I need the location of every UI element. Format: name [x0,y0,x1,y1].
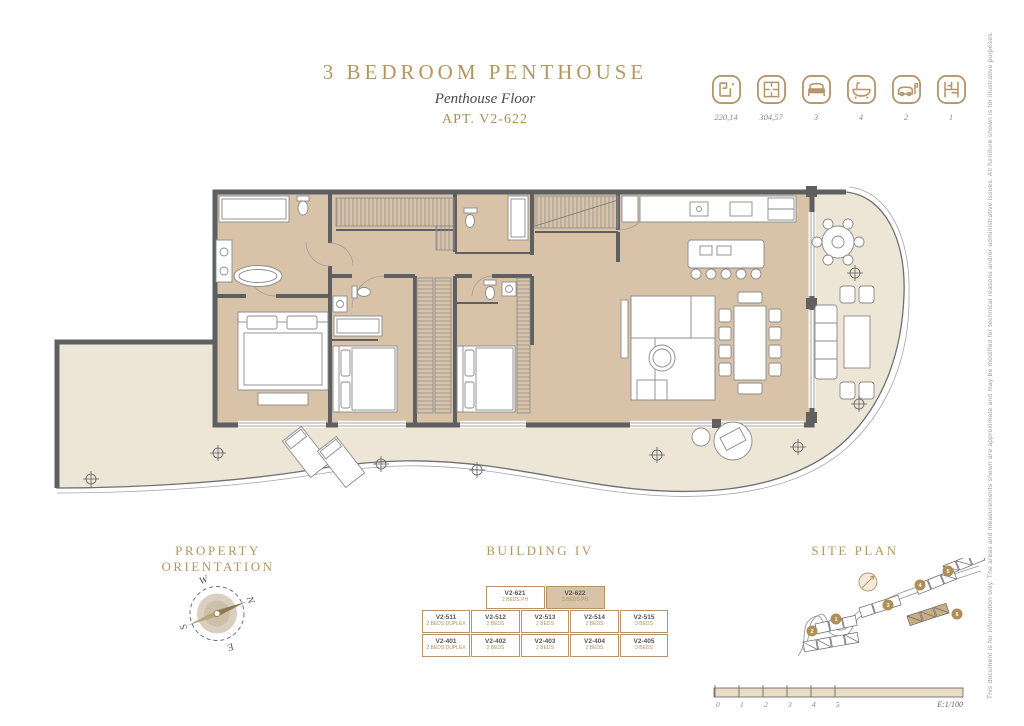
unit-type: 2 BEDS DUPLEX [423,645,470,651]
unit-cell-V2-403: V2-4032 BEDS [521,634,570,657]
compass-n: N [243,594,257,606]
unit-type: 3 BEDS PH [547,597,604,603]
storage-icon [936,74,967,105]
unit-type: 2 BEDS [472,621,519,627]
scale-bar: 0 1 2 3 4 5 E:1/100 [712,684,968,714]
coffee-table [649,345,675,371]
outdoor-sofa [815,305,837,379]
sofa [631,296,715,400]
site-buildings [803,558,985,652]
bathrooms-icon [846,74,877,105]
scale-tick-1: 1 [740,700,744,709]
unit-name: V2-622 [547,590,604,597]
header: 3 Bedroom Penthouse Penthouse Floor APT.… [290,60,680,128]
unit-cell-V2-515: V2-5153 BEDS [620,610,669,633]
bed-3 [457,346,515,412]
unit-type: 2 BEDS [571,645,618,651]
tv-sideboard [621,300,628,358]
unit-name: V2-514 [571,614,618,621]
spec-storage: 1 [933,74,969,122]
bedrooms-icon [801,74,832,105]
site-marker-1: 1 [834,617,837,623]
unit-name: V2-403 [522,638,569,645]
site-marker-2: 2 [810,629,813,635]
outdoor-table [844,316,870,368]
parking-icon [891,74,922,105]
building-stack-row: V2-5112 BEDS DUPLEXV2-5122 BEDSV2-5132 B… [420,610,670,633]
unit-cell-V2-402: V2-4022 BEDS [471,634,520,657]
unit-name: V2-513 [522,614,569,621]
spec-parking: 2 [888,74,924,122]
unit-name: V2-511 [423,614,470,621]
spec-interior-area: 220,14 [708,74,744,122]
vanity [216,240,232,282]
site-marker-6: 6 [955,612,958,618]
unit-cell-V2-513: V2-5132 BEDS [521,610,570,633]
scale-tick-4: 4 [812,700,816,709]
disclaimer-text: This document is for information only. T… [984,18,998,712]
building-stack-row: V2-4012 BEDS DUPLEXV2-4022 BEDSV2-4032 B… [420,634,670,657]
unit-name: V2-621 [487,590,544,597]
unit-type: 2 BEDS DUPLEX [423,621,470,627]
scale-tick-3: 3 [787,700,792,709]
spec-total-area: 304,57 [753,74,789,122]
bedrooms-value: 3 [798,112,834,122]
bench [258,393,308,405]
unit-type: 2 BEDS [522,645,569,651]
toilet [297,196,309,215]
total-area-icon [756,74,787,105]
unit-cell-V2-512: V2-5122 BEDS [471,610,520,633]
unit-name: V2-404 [571,638,618,645]
interior-area-icon [711,74,742,105]
living-room [621,292,781,400]
unit-type: 2 BEDS [522,621,569,627]
unit-cell-V2-622: V2-6223 BEDS PH [546,586,605,609]
unit-cell-V2-401: V2-4012 BEDS DUPLEX [422,634,471,657]
spec-bedrooms: 3 [798,74,834,122]
master-bed [238,312,328,390]
unit-type: 2 BEDS [571,621,618,627]
side-pouf [692,428,710,446]
scale-tick-5: 5 [836,700,840,709]
building-title: Building IV [440,543,640,559]
unit-type: 2 BEDS [472,645,519,651]
scale-tick-2: 2 [764,700,768,709]
unit-name: V2-405 [621,638,668,645]
bathrooms-value: 4 [843,112,879,122]
lounge-pouf [714,422,752,460]
unit-cell-V2-621: V2-6212 BEDS PH [486,586,545,609]
unit-name: V2-401 [423,638,470,645]
storage-value: 1 [933,112,969,122]
total-area-value: 304,57 [753,112,789,122]
spec-bathrooms: 4 [843,74,879,122]
unit-cell-V2-404: V2-4042 BEDS [570,634,619,657]
page-title: 3 Bedroom Penthouse [290,60,680,85]
unit-name: V2-402 [472,638,519,645]
parking-value: 2 [888,112,924,122]
compass-s: S [178,622,190,631]
compass: N E S W [160,563,275,663]
bed-2 [333,346,397,412]
unit-type: 3 BEDS [621,621,668,627]
floor-plan [40,160,970,530]
site-marker-5: 5 [946,569,949,575]
floor-subtitle: Penthouse Floor [290,91,680,108]
scale-ratio: E:1/100 [936,700,963,709]
unit-cell-V2-514: V2-5142 BEDS [570,610,619,633]
spec-icons-row: 220,14 304,57 3 4 2 [708,74,969,122]
unit-name: V2-515 [621,614,668,621]
scale-tick-0: 0 [716,700,720,709]
building-stack: V2-6212 BEDS PHV2-6223 BEDS PHV2-5112 BE… [420,586,670,658]
shower [219,196,289,222]
interior-area-value: 220,14 [708,112,744,122]
bathtub [234,266,282,287]
site-plan: 1 2 3 4 5 6 [795,558,985,680]
unit-name: V2-512 [472,614,519,621]
kitchen-island [688,240,764,279]
unit-cell-V2-405: V2-4053 BEDS [620,634,669,657]
unit-type: 2 BEDS PH [487,597,544,603]
unit-type: 3 BEDS [621,645,668,651]
building-stack-row: V2-6212 BEDS PHV2-6223 BEDS PH [420,586,670,609]
site-compass [859,573,877,591]
compass-e: E [225,640,236,653]
unit-cell-V2-511: V2-5112 BEDS DUPLEX [422,610,471,633]
compass-w: W [198,573,211,587]
apartment-number: APT. V2-622 [290,112,680,128]
site-marker-3: 3 [886,603,889,609]
staircase [535,196,618,228]
siteplan-title: Site Plan [775,543,935,559]
